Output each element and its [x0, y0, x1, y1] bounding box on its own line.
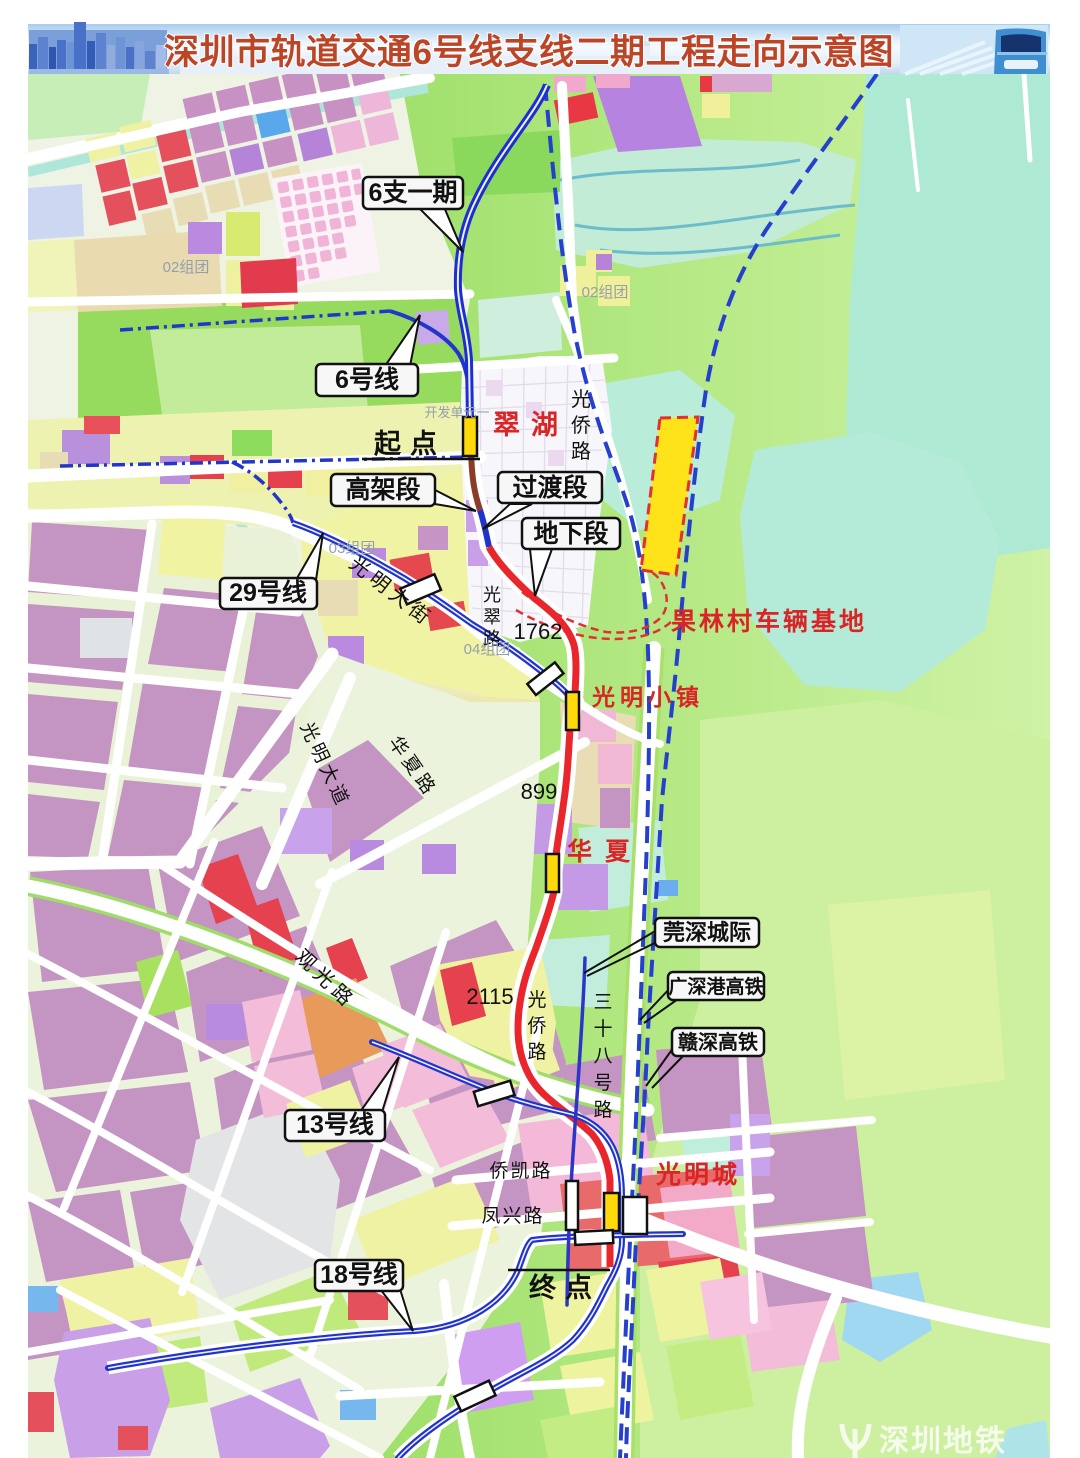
svg-text:开发单元一: 开发单元一 — [424, 405, 489, 420]
svg-text:02组团: 02组团 — [582, 284, 629, 301]
svg-text:莞深城际: 莞深城际 — [663, 920, 751, 945]
svg-text:八: 八 — [593, 1046, 612, 1067]
svg-text:侨凯路: 侨凯路 — [489, 1160, 552, 1182]
svg-text:深圳市轨道交通6号线支线二期工程走向示意图: 深圳市轨道交通6号线支线二期工程走向示意图 — [164, 32, 894, 72]
svg-text:侨: 侨 — [527, 1015, 546, 1037]
svg-text:赣深高铁: 赣深高铁 — [678, 1030, 758, 1054]
svg-text:02组团: 02组团 — [163, 259, 210, 276]
svg-text:1762: 1762 — [514, 619, 563, 644]
svg-text:899: 899 — [521, 779, 558, 804]
svg-text:光明小镇: 光明小镇 — [591, 684, 704, 710]
svg-text:起点: 起点 — [374, 429, 446, 459]
svg-text:号: 号 — [593, 1073, 612, 1094]
svg-text:地下段: 地下段 — [533, 519, 608, 548]
svg-text:深圳地铁: 深圳地铁 — [879, 1425, 1007, 1458]
svg-text:13号线: 13号线 — [296, 1110, 374, 1139]
svg-text:03组团: 03组团 — [329, 540, 376, 557]
svg-text:凤兴路: 凤兴路 — [481, 1205, 544, 1227]
svg-text:十: 十 — [593, 1018, 612, 1040]
svg-text:路: 路 — [571, 440, 591, 463]
svg-text:侨: 侨 — [571, 414, 591, 437]
svg-text:路: 路 — [593, 1099, 612, 1121]
svg-text:6号线: 6号线 — [335, 365, 399, 394]
svg-text:光: 光 — [527, 989, 546, 1011]
svg-text:翠: 翠 — [483, 607, 501, 627]
svg-text:华夏: 华夏 — [567, 837, 643, 866]
svg-text:2115: 2115 — [466, 984, 513, 1009]
svg-text:29号线: 29号线 — [229, 578, 307, 607]
svg-text:6支一期: 6支一期 — [369, 179, 458, 207]
svg-text:18号线: 18号线 — [320, 1260, 398, 1289]
svg-text:高架段: 高架段 — [345, 475, 420, 504]
svg-text:三: 三 — [593, 992, 612, 1013]
svg-text:翠湖: 翠湖 — [493, 410, 569, 440]
svg-text:路: 路 — [527, 1041, 546, 1063]
svg-text:光: 光 — [483, 585, 501, 605]
svg-text:终点: 终点 — [529, 1272, 601, 1303]
svg-text:广深港高铁: 广深港高铁 — [668, 975, 763, 998]
svg-text:果林村车辆基地: 果林村车辆基地 — [671, 607, 867, 636]
svg-text:04组团: 04组团 — [464, 641, 511, 658]
svg-text:光明城: 光明城 — [655, 1161, 740, 1189]
svg-text:过渡段: 过渡段 — [512, 473, 587, 502]
svg-text:光: 光 — [571, 388, 591, 411]
